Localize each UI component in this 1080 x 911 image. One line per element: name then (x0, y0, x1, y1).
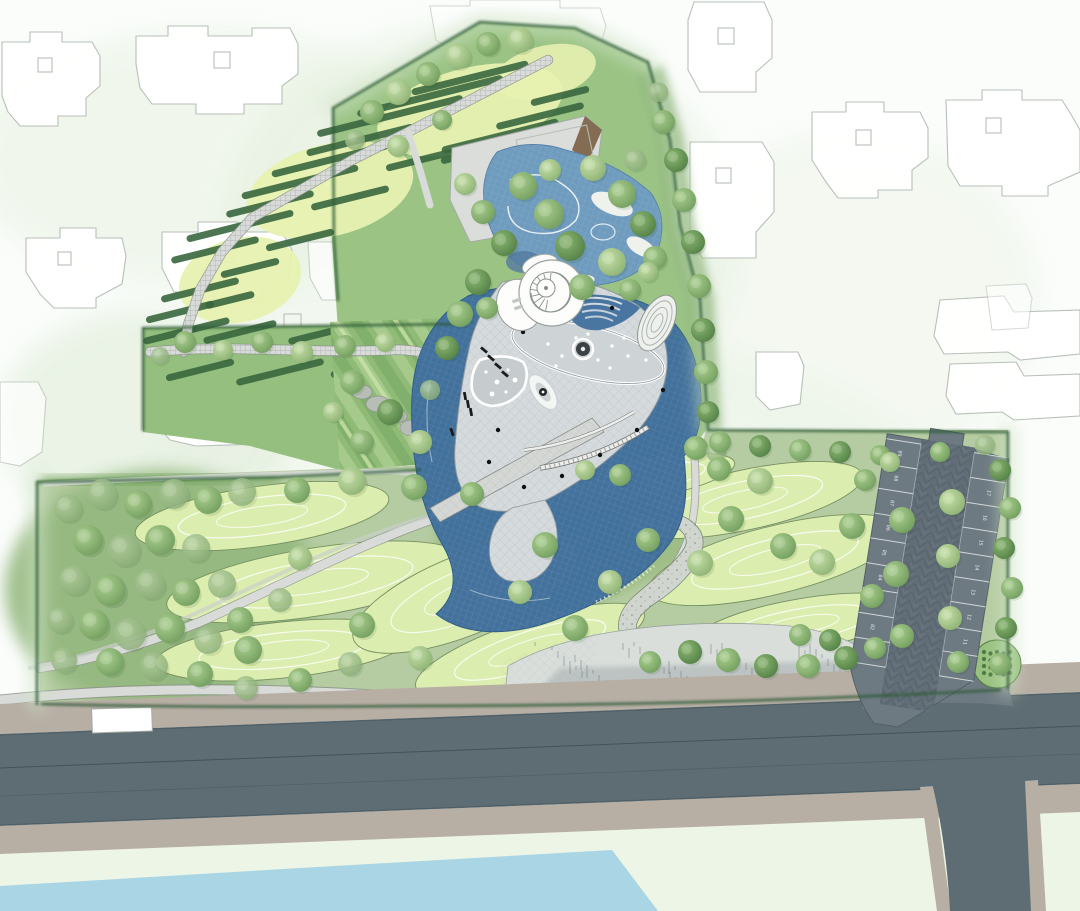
site-plan-canvas: 090807060504030201181716151413121110 (0, 0, 1080, 911)
stall-number: 02 (868, 624, 875, 631)
stall-number: 07 (888, 500, 895, 507)
stall-number: 16 (981, 514, 988, 521)
stall-number: 05 (880, 549, 887, 556)
stall-number: 15 (977, 539, 984, 546)
stall-number: 14 (973, 564, 980, 571)
stall-number: 08 (892, 475, 899, 482)
site-plan: 090807060504030201181716151413121110 (0, 0, 1080, 911)
bus-shelter (92, 707, 153, 733)
stall-number: 06 (884, 524, 891, 531)
stall-number: 04 (876, 574, 883, 581)
stall-number: 12 (965, 613, 972, 620)
stall-number: 17 (985, 489, 992, 496)
stall-number: 13 (969, 589, 976, 596)
stall-number: 11 (961, 638, 968, 645)
